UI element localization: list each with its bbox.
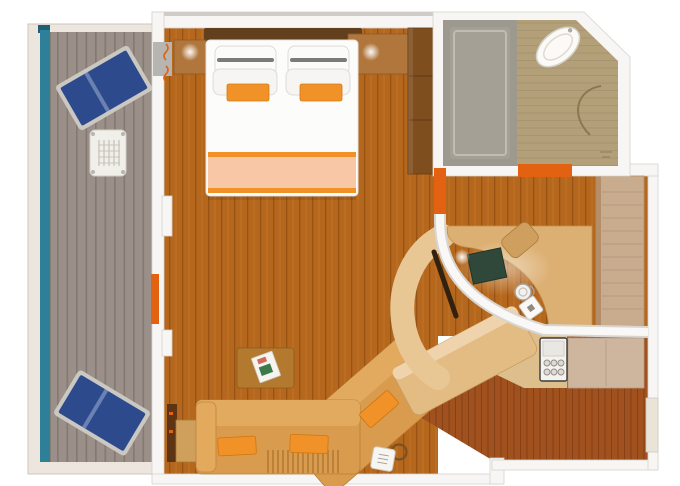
entry-door xyxy=(646,398,658,452)
panel-accent xyxy=(169,412,173,415)
balcony-divider-wall xyxy=(152,12,164,478)
desk-lamp-glow xyxy=(454,249,470,265)
deck-table xyxy=(90,130,126,176)
window-frame-tab xyxy=(162,330,172,356)
window-frame-tab xyxy=(162,196,172,236)
wardrobe-highlight xyxy=(408,28,413,174)
sofa-pleats xyxy=(268,450,338,473)
door-accent-orange xyxy=(151,274,159,324)
table-foot xyxy=(91,132,95,136)
orange-wall-post xyxy=(434,168,446,214)
closet-edge xyxy=(596,176,601,326)
bed-shadow xyxy=(208,196,356,200)
entry-bottom-wall xyxy=(492,460,658,470)
table-foot xyxy=(121,170,125,174)
hair-dryer xyxy=(370,446,395,471)
table-foot xyxy=(121,132,125,136)
sofa-accent-pillow xyxy=(218,436,257,456)
balcony xyxy=(28,24,164,474)
floor-plan xyxy=(0,0,680,486)
accent-pillow xyxy=(300,84,342,101)
desk-blotter xyxy=(467,248,506,284)
minibar-fridge xyxy=(540,338,567,381)
bed-foot-band xyxy=(208,152,356,157)
fridge-panel xyxy=(543,341,564,356)
closet xyxy=(596,176,644,326)
panel-accent xyxy=(169,430,173,433)
balcony-door-glass xyxy=(153,42,172,76)
floor-plan-canvas xyxy=(0,0,680,486)
bed-foot-runner xyxy=(208,157,356,188)
sofa-armrest xyxy=(196,402,216,472)
reading-light-left xyxy=(181,43,199,61)
reading-light-right xyxy=(362,43,380,61)
balcony-railing-teal xyxy=(40,30,50,462)
sofa-accent-pillow xyxy=(290,434,329,453)
pillow-stripe xyxy=(217,58,274,62)
accent-pillow xyxy=(227,84,269,101)
top-wall-edge xyxy=(152,12,438,16)
sofa-straight-section xyxy=(196,400,360,474)
bathroom xyxy=(433,12,630,176)
deck-table-top xyxy=(90,130,126,176)
bathroom-threshold xyxy=(518,164,572,177)
shower-basin xyxy=(450,27,510,159)
bed-foot-band xyxy=(208,188,356,193)
table-foot xyxy=(91,170,95,174)
pillow-stripe xyxy=(290,58,347,62)
